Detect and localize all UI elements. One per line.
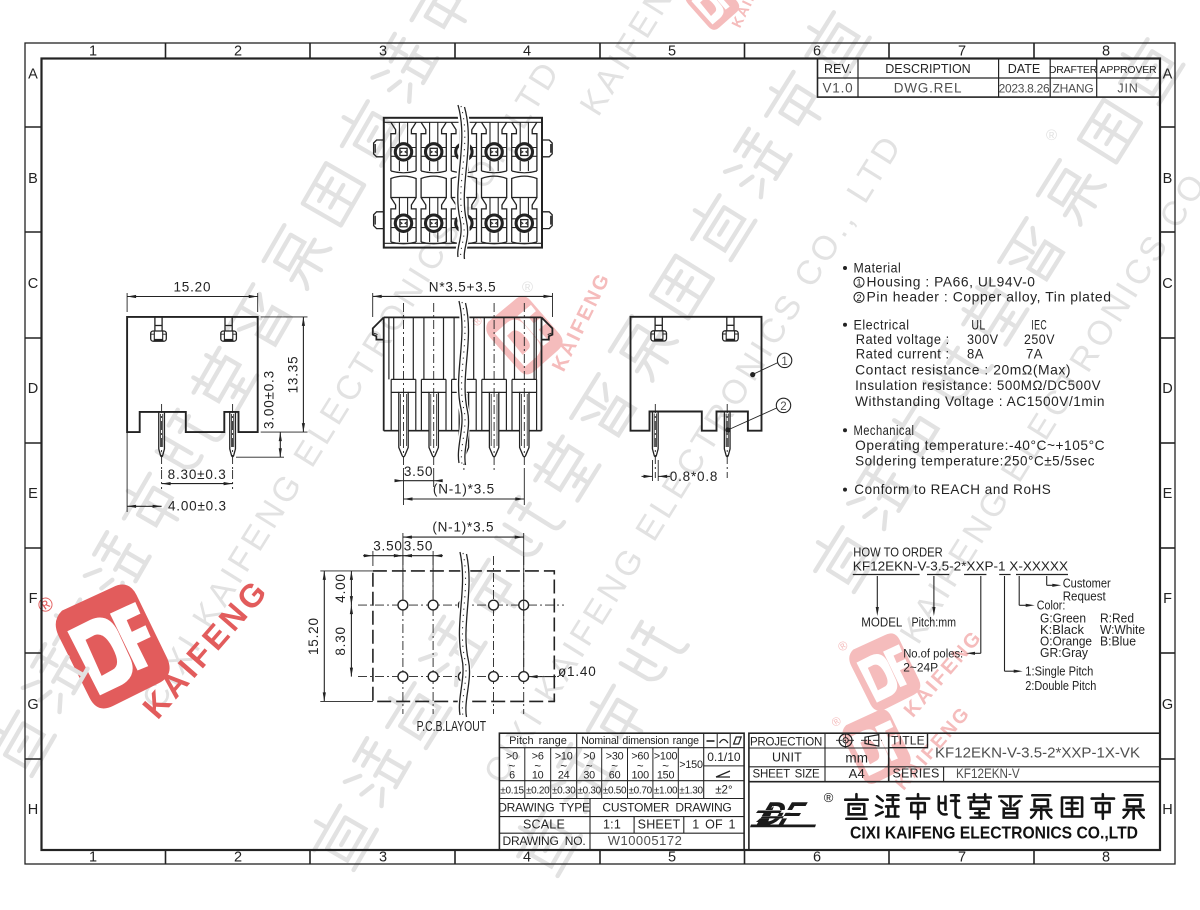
svg-text:mm: mm [845,751,868,766]
svg-text:F: F [29,591,38,607]
svg-text:250V: 250V [1024,332,1055,347]
svg-text:±0.15: ±0.15 [500,786,524,797]
svg-text:24: 24 [558,770,570,782]
svg-text:1:1: 1:1 [603,818,621,832]
svg-text:1: 1 [89,850,97,866]
svg-text:W10005172: W10005172 [608,833,683,848]
svg-text:300V: 300V [967,332,999,347]
svg-text:No.of poles:: No.of poles: [903,647,963,661]
svg-text:1 OF 1: 1 OF 1 [692,818,735,832]
svg-text:150: 150 [657,770,675,782]
svg-text:D: D [1162,381,1172,397]
svg-text:A: A [28,67,38,83]
svg-text:(N-1)*3.5: (N-1)*3.5 [432,520,494,535]
svg-text:UNIT: UNIT [772,751,802,765]
svg-text:ZHANG: ZHANG [1052,82,1093,96]
svg-text:C: C [28,276,38,292]
svg-text:DWG.REL: DWG.REL [894,81,963,96]
svg-text:±2°: ±2° [715,785,732,797]
svg-text:1:Single Pitch: 1:Single Pitch [1025,664,1093,679]
svg-text:2: 2 [234,850,242,866]
svg-text:±0.30: ±0.30 [552,786,576,797]
svg-text:UL: UL [971,317,985,332]
svg-text:DRAFTER: DRAFTER [1049,64,1098,76]
svg-text:±1.30: ±1.30 [679,786,703,797]
svg-text:4.00±0.3: 4.00±0.3 [168,499,227,514]
svg-text:8: 8 [1102,850,1110,866]
svg-text:®: ® [522,279,533,296]
svg-text:KF12EKN-V-3.5-2*XXP-1X-VK: KF12EKN-V-3.5-2*XXP-1X-VK [935,746,1140,762]
svg-text:10: 10 [532,770,544,782]
svg-text:2~24P: 2~24P [903,661,938,675]
svg-text:Operating temperature:-40°C~+1: Operating temperature:-40°C~+105°C [855,438,1105,453]
svg-text:8A: 8A [967,347,984,362]
svg-text:2: 2 [780,401,786,413]
svg-text:15.20: 15.20 [306,617,321,655]
svg-text:Request: Request [1063,589,1106,604]
svg-text:G: G [27,697,38,713]
svg-text:Material: Material [854,261,902,276]
svg-text:Nominal dimension range: Nominal dimension range [581,735,699,747]
svg-text:1: 1 [781,356,787,368]
svg-text:3: 3 [379,44,387,60]
svg-text:®: ® [824,790,834,805]
svg-text:ø1.40: ø1.40 [558,664,597,679]
svg-text:2023.8.26: 2023.8.26 [999,82,1050,96]
svg-text:N*3.5+3.5: N*3.5+3.5 [429,279,497,294]
svg-text:0.1/10: 0.1/10 [707,750,741,764]
svg-text:B:Blue: B:Blue [1100,635,1136,649]
svg-text:4: 4 [523,44,531,60]
svg-text:4.00: 4.00 [333,573,348,602]
svg-text:A4: A4 [849,766,865,781]
svg-text:F: F [1163,591,1172,607]
svg-text:±0.70: ±0.70 [628,786,652,797]
svg-text:Mechanical: Mechanical [854,423,915,438]
svg-text:6: 6 [813,44,821,60]
svg-text:Contact resistance : 20mΩ(Max): Contact resistance : 20mΩ(Max) [855,363,1071,378]
svg-text:1: 1 [89,44,97,60]
svg-text:H: H [28,802,38,818]
svg-text:SHEET SIZE: SHEET SIZE [753,769,820,781]
svg-text:SHEET: SHEET [638,818,681,832]
svg-text:1: 1 [856,278,861,289]
svg-text:DRAWING NO.: DRAWING NO. [502,834,585,848]
svg-text:B: B [1163,171,1173,187]
svg-text:15.20: 15.20 [174,280,212,295]
svg-text:SCALE: SCALE [523,818,565,832]
svg-text:GR:Gray: GR:Gray [1040,646,1089,660]
svg-text:5: 5 [668,850,676,866]
svg-text:2: 2 [234,44,242,60]
svg-text:3.50: 3.50 [404,464,433,479]
svg-text:Insulation resistance: 500MΩ/D: Insulation resistance: 500MΩ/DC500V [855,378,1101,393]
svg-text:DATE: DATE [1008,62,1040,76]
svg-text:CIXI KAIFENG ELECTRONICS CO.,L: CIXI KAIFENG ELECTRONICS CO.,LTD [850,823,1138,843]
svg-text:G: G [1162,697,1173,713]
svg-text:±0.20: ±0.20 [526,786,550,797]
svg-text:7A: 7A [1026,347,1043,362]
svg-text:REV.: REV. [824,62,852,76]
svg-text:(N-1)*3.5: (N-1)*3.5 [433,482,495,497]
svg-text:4: 4 [523,850,531,866]
svg-text:Pitch range: Pitch range [509,735,567,747]
svg-text:7: 7 [958,850,966,866]
svg-text:PROJECTION: PROJECTION [750,737,822,749]
svg-text:60: 60 [609,770,621,782]
svg-text:E: E [1163,486,1173,502]
svg-text:30: 30 [583,770,595,782]
svg-text:Soldering temperature:250°C±5/: Soldering temperature:250°C±5/5sec [855,453,1095,468]
svg-text:KF12EKN-V-3.5-2*XXP-1 X-XXXXX: KF12EKN-V-3.5-2*XXP-1 X-XXXXX [853,559,1068,574]
svg-text:TITLE: TITLE [891,733,925,747]
svg-text:Housing : PA66, UL94V-0: Housing : PA66, UL94V-0 [867,275,1036,290]
svg-text:>150: >150 [679,759,703,771]
svg-text:KF12EKN-V: KF12EKN-V [956,766,1020,781]
svg-text:6: 6 [509,770,515,782]
svg-text:D: D [28,381,38,397]
svg-text:8.30±0.3: 8.30±0.3 [168,467,227,482]
svg-text:MODEL: MODEL [861,616,902,630]
svg-text:CUSTOMER DRAWING: CUSTOMER DRAWING [602,801,731,815]
svg-text:Color:: Color: [1037,597,1066,612]
svg-text:2:Double Pitch: 2:Double Pitch [1025,678,1096,693]
svg-text:3: 3 [379,850,387,866]
svg-text:SERIES: SERIES [892,767,939,781]
svg-text:JIN: JIN [1117,82,1138,96]
svg-text:±1.00: ±1.00 [654,786,678,797]
svg-text:3.00±0.3: 3.00±0.3 [262,370,277,429]
svg-text:C: C [1162,276,1172,292]
svg-text:Conform to REACH and RoHS: Conform to REACH and RoHS [854,482,1051,497]
svg-text:Rated voltage :: Rated voltage : [856,332,950,347]
svg-text:0.8*0.8: 0.8*0.8 [670,469,718,484]
svg-text:V1.0: V1.0 [823,81,854,96]
svg-text:3.50: 3.50 [404,539,433,554]
svg-text:B: B [28,171,38,187]
svg-text:H: H [1162,802,1172,818]
svg-text:5: 5 [668,44,676,60]
svg-text:100: 100 [631,770,649,782]
svg-text:8: 8 [1102,44,1110,60]
svg-text:±0.50: ±0.50 [603,786,627,797]
svg-text:HOW TO ORDER: HOW TO ORDER [853,545,942,560]
svg-text:A: A [1163,67,1173,83]
svg-text:6: 6 [813,850,821,866]
svg-text:Pin header : Copper alloy, Tin: Pin header : Copper alloy, Tin plated [867,290,1112,305]
svg-text:2: 2 [856,293,861,304]
svg-text:Electrical: Electrical [854,317,910,332]
svg-text:8.30: 8.30 [333,626,348,655]
svg-text:±0.30: ±0.30 [577,786,601,797]
svg-text:®: ® [1046,127,1057,144]
svg-text:IEC: IEC [1031,317,1047,332]
svg-text:3.50: 3.50 [373,539,402,554]
svg-text:7: 7 [958,44,966,60]
svg-text:E: E [28,486,38,502]
svg-text:Rated current :: Rated current : [856,347,950,362]
svg-text:Withstanding Voltage : AC1500V: Withstanding Voltage : AC1500V/1min [855,394,1105,409]
svg-text:P.C.B.LAYOUT: P.C.B.LAYOUT [417,718,487,735]
svg-text:DRAWING TYPE: DRAWING TYPE [498,801,590,815]
svg-text:13.35: 13.35 [285,356,300,394]
svg-text:DESCRIPTION: DESCRIPTION [885,62,970,76]
svg-text:Pitch:mm: Pitch:mm [912,616,957,630]
svg-text:APPROVER: APPROVER [1100,64,1157,76]
